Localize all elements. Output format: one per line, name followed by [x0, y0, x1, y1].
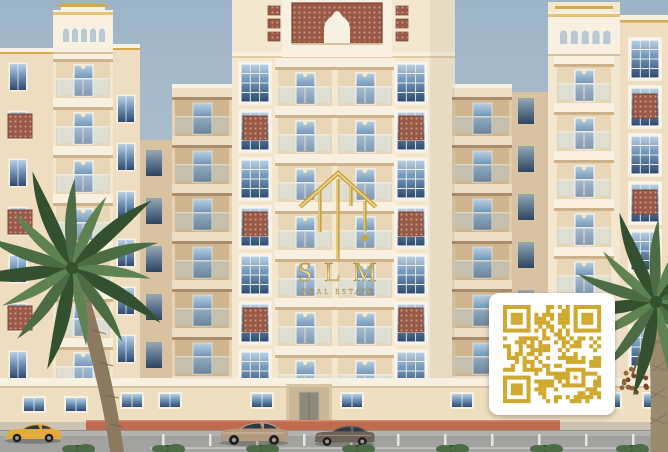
qr-code [489, 293, 615, 415]
entrance [286, 384, 332, 424]
central-crown-panel [282, 0, 392, 57]
right-tower-crown [548, 6, 620, 56]
tower-edge-shade [430, 0, 455, 430]
real-estate-listing-image: SLM REAL ESTATE [0, 0, 668, 452]
left-tower-crown [53, 4, 113, 54]
logo-title: SLM [297, 257, 389, 287]
logo-subtitle: REAL ESTATE [302, 288, 375, 296]
